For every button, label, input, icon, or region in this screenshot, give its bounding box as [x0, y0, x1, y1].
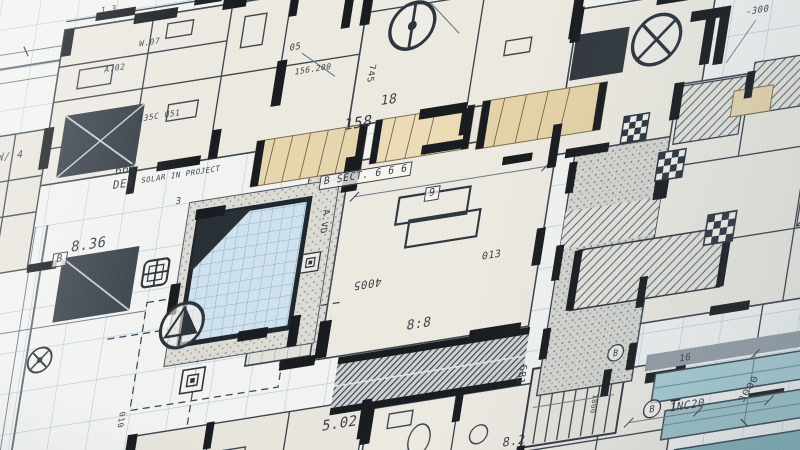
- plan-label: 745: [364, 64, 376, 84]
- circled-letter-symbol: B: [637, 393, 667, 424]
- blueprint-photo: BB 15818B SECT. 6 6 69661DESNOM W/ 4SOLA…: [0, 0, 800, 450]
- drafting-sheet: BB 15818B SECT. 6 6 69661DESNOM W/ 4SOLA…: [0, 0, 800, 450]
- plan-label: 9: [424, 185, 441, 202]
- circle-x-symbol: [20, 340, 59, 381]
- sq-in-sq-symbol: [296, 248, 324, 277]
- plan-label: 661: [114, 162, 137, 177]
- compass-symbol: [152, 294, 212, 356]
- checker-symbol: [701, 208, 740, 249]
- plan-label: 18: [380, 92, 399, 108]
- clock-circle-symbol: [380, 0, 445, 59]
- checker-symbol: [618, 110, 653, 146]
- plan-label: B: [51, 251, 68, 268]
- fixture-cross-symbol: [135, 251, 176, 294]
- plan-label: DES: [112, 176, 135, 191]
- plan-label: 8:8: [406, 316, 433, 333]
- circled-letter-symbol: B: [602, 338, 630, 367]
- checker-symbol: [652, 146, 689, 184]
- plan-label: 010: [115, 411, 126, 429]
- sq-in-sq-symbol: [175, 362, 210, 398]
- plan-label: 8.2: [502, 433, 527, 449]
- circle-cross-symbol: [622, 4, 691, 76]
